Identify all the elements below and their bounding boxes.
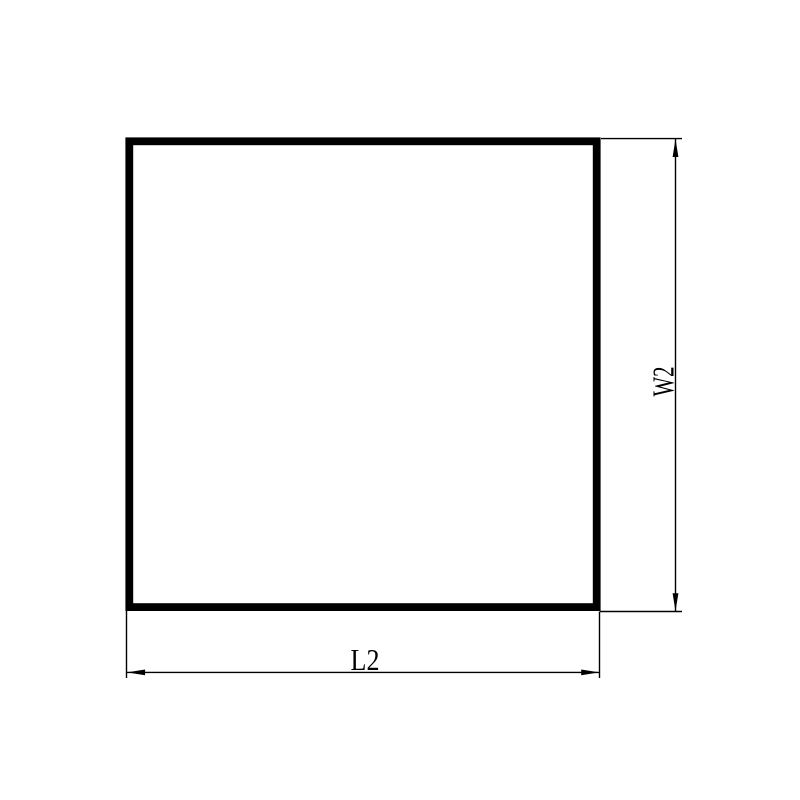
svg-text:W2: W2 <box>645 367 680 397</box>
svg-text:L2: L2 <box>351 643 380 678</box>
